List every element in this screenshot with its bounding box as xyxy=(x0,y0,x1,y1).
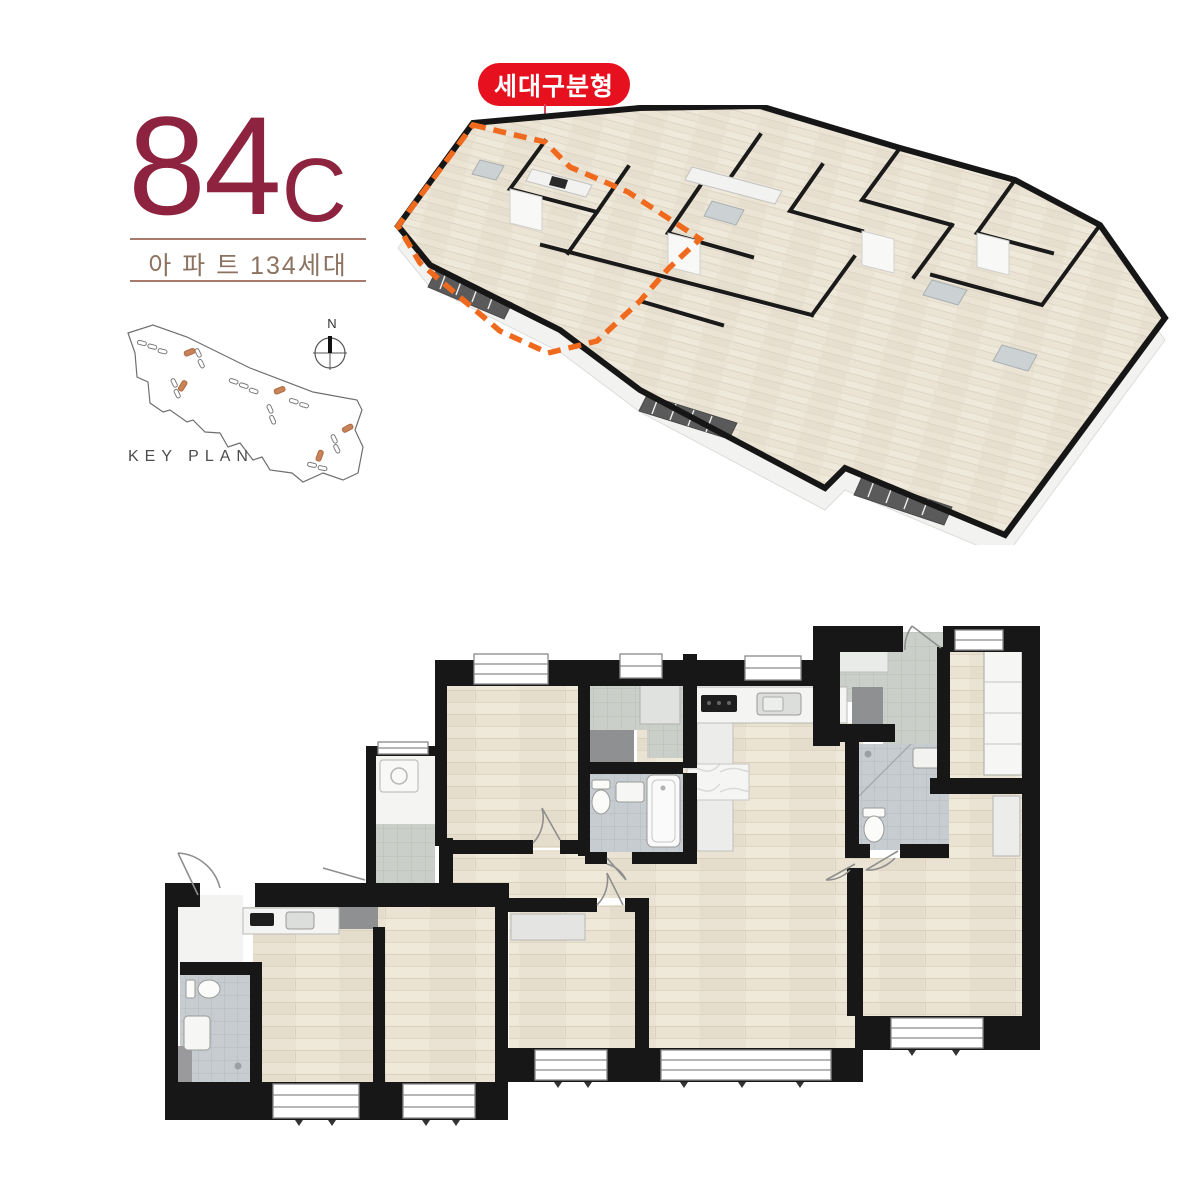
unit-code: 84 C xyxy=(128,96,366,236)
unit-subtitle: 아 파 트 134세대 xyxy=(130,246,366,282)
brochure-canvas: 84 C 아 파 트 134세대 xyxy=(0,0,1200,1200)
bedroom2-wardrobe xyxy=(511,914,585,940)
sink-main xyxy=(616,782,644,802)
sink-left xyxy=(184,1016,210,1050)
toilet-main xyxy=(592,780,610,814)
left-cooktop xyxy=(250,913,274,926)
title-divider-bottom xyxy=(130,280,366,282)
unit-type-badge: 세대구분형 xyxy=(478,63,630,106)
floorplan-2d xyxy=(160,618,1040,1138)
toilet-master xyxy=(863,808,885,842)
left-sink xyxy=(286,912,314,929)
keyplan-map xyxy=(122,316,394,496)
unit-letter: C xyxy=(282,146,347,236)
shower-left xyxy=(235,1063,242,1070)
keyplan-label: KEY PLAN xyxy=(128,448,254,466)
toilet-left xyxy=(186,980,220,998)
compass-icon xyxy=(313,336,347,370)
dressing-wardrobe xyxy=(984,651,1022,775)
compass-north-label: N xyxy=(322,316,342,331)
bathtub xyxy=(647,775,680,847)
unit-title-block: 84 C xyxy=(128,96,366,236)
utility-appliance xyxy=(640,684,680,724)
floorplan-3d xyxy=(392,105,1172,545)
title-divider-top xyxy=(130,238,366,240)
master-dresser xyxy=(993,796,1020,856)
alcove-floor xyxy=(376,824,435,883)
unit-number: 84 xyxy=(128,96,280,236)
washer xyxy=(380,760,418,792)
